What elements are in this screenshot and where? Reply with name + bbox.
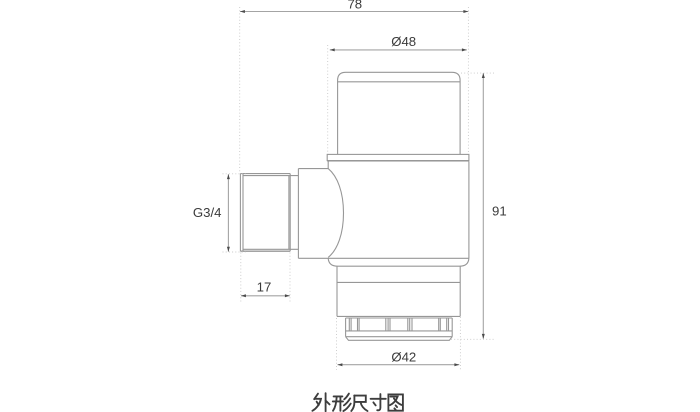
svg-text:91: 91 — [492, 204, 507, 219]
svg-text:Ø42: Ø42 — [391, 349, 416, 364]
svg-text:78: 78 — [347, 0, 362, 12]
svg-text:Ø48: Ø48 — [391, 34, 416, 49]
svg-text:G3/4: G3/4 — [193, 205, 222, 220]
svg-text:17: 17 — [257, 280, 272, 295]
